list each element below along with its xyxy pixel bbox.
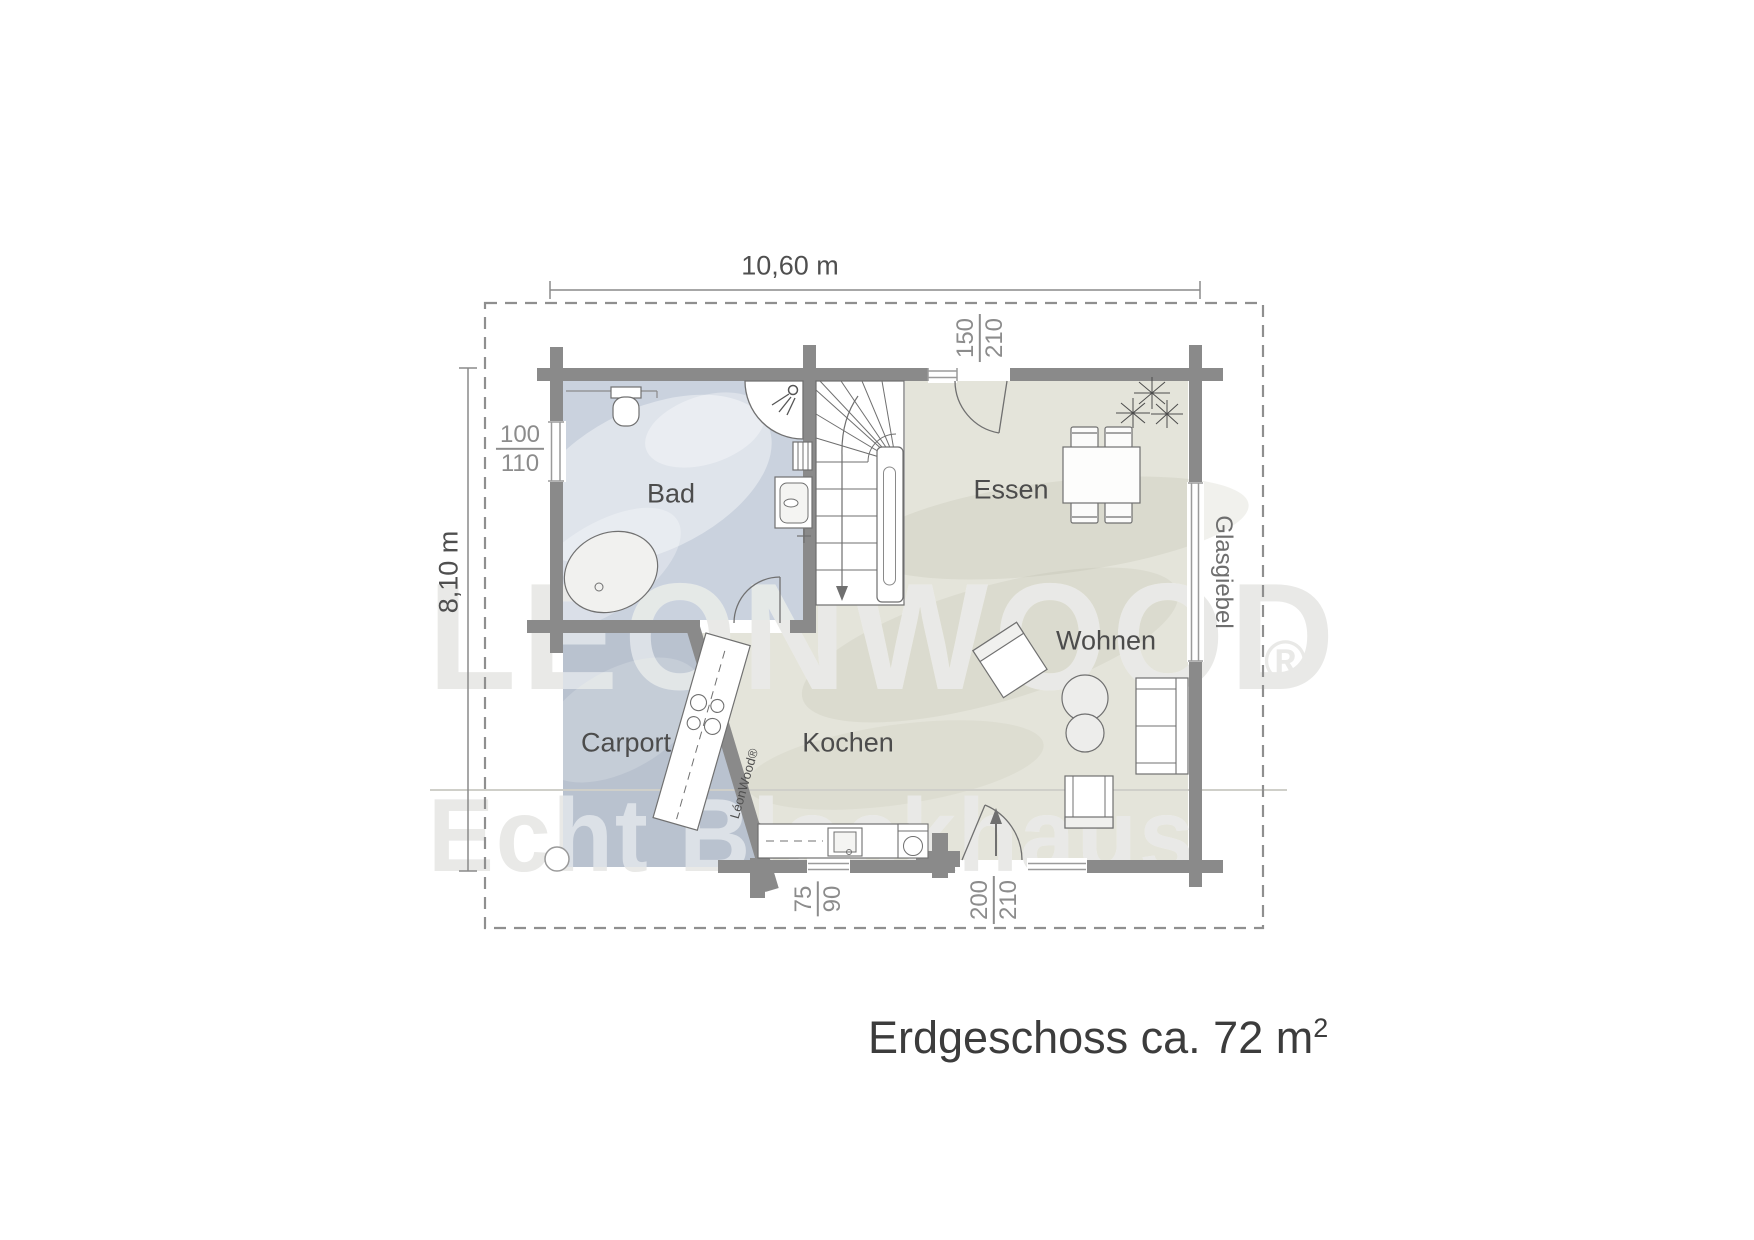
shower-icon bbox=[745, 381, 803, 439]
entrance-arrow-icon bbox=[990, 808, 1002, 856]
dining-table-set bbox=[1063, 427, 1140, 523]
door-entrance bbox=[962, 805, 1022, 860]
door-bath bbox=[734, 577, 780, 623]
carport-post-icon bbox=[545, 847, 569, 871]
room-label-bad: Bad bbox=[647, 479, 695, 510]
coffee-tables-icon bbox=[1062, 675, 1108, 752]
room-label-kochen: Kochen bbox=[802, 728, 894, 759]
window-top-essen bbox=[928, 366, 957, 383]
window-glass-gable bbox=[1187, 482, 1204, 662]
width-dimension-line bbox=[550, 281, 1200, 299]
window-wohnen bbox=[1027, 858, 1087, 875]
radiator-icon bbox=[793, 442, 812, 470]
window-size-label-left: 100 110 bbox=[496, 422, 544, 476]
armchair-bottom-icon bbox=[1065, 776, 1113, 828]
window-size-label-kitchen: 75 90 bbox=[791, 882, 845, 917]
window-kitchen bbox=[807, 858, 850, 875]
staircase bbox=[816, 381, 904, 605]
sofa-icon bbox=[1136, 678, 1188, 774]
glass-gable-label: Glasgiebel bbox=[1209, 515, 1237, 628]
appliance-icon bbox=[898, 824, 928, 858]
floor-plan-canvas: LEONWOOD Echt Blockhaus ® LEONWOOD Echt … bbox=[0, 0, 1754, 1240]
toilet-icon bbox=[611, 387, 641, 426]
height-dimension-label: 8,10 m bbox=[434, 531, 465, 614]
plant-icon bbox=[1116, 377, 1183, 428]
bathtub-icon bbox=[551, 517, 670, 627]
room-label-carport: Carport bbox=[581, 728, 671, 759]
height-dimension-line bbox=[459, 368, 477, 871]
door-size-label-entrance: 200 210 bbox=[967, 876, 1021, 924]
armchair-top-icon bbox=[973, 622, 1047, 697]
stair-handrail bbox=[877, 447, 903, 602]
door-terrace-essen bbox=[955, 381, 1007, 433]
sink-icon bbox=[828, 828, 862, 856]
room-label-wohnen: Wohnen bbox=[1056, 626, 1156, 657]
window-left-bath bbox=[547, 421, 566, 482]
door-size-label-top: 150 210 bbox=[953, 314, 1007, 362]
room-label-essen: Essen bbox=[973, 475, 1048, 506]
kitchen-counter-bottom bbox=[758, 824, 928, 858]
width-dimension-label: 10,60 m bbox=[741, 251, 839, 282]
page-title: Erdgeschoss ca. 72 m2 bbox=[868, 1012, 1328, 1064]
